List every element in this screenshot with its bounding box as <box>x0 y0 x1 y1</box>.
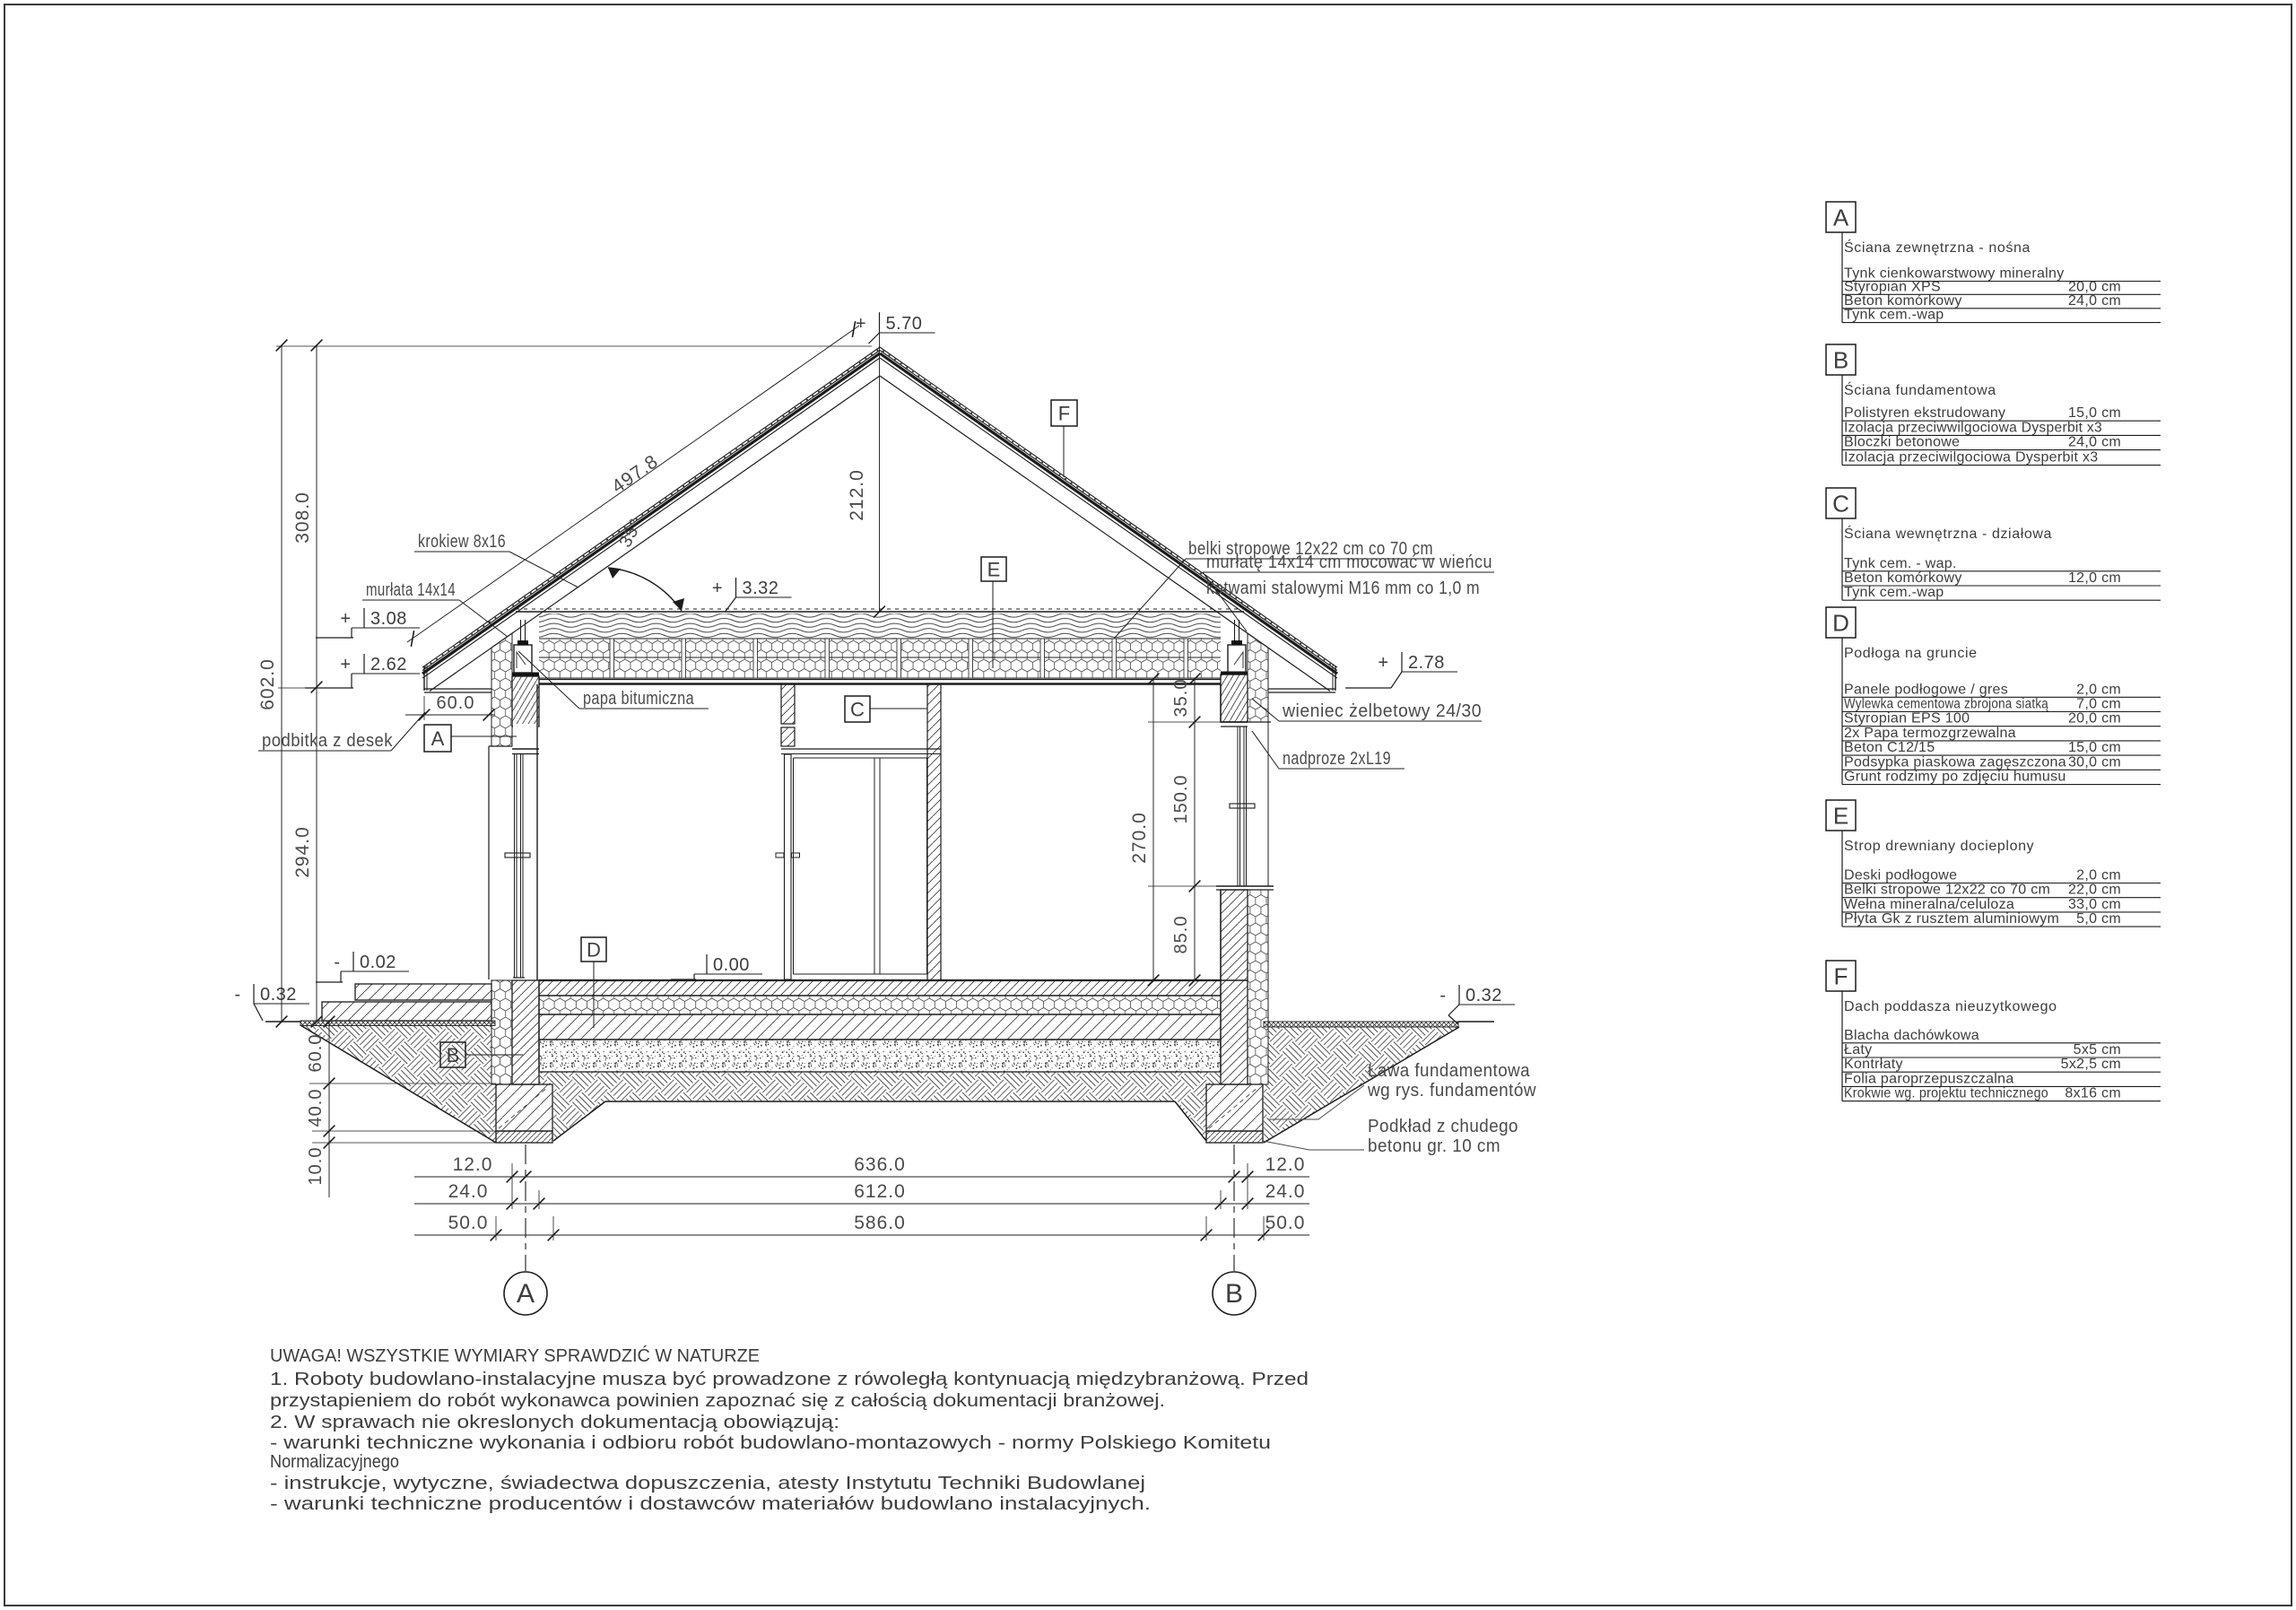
svg-text:30,0 cm: 30,0 cm <box>2068 754 2121 770</box>
svg-text:5.70: 5.70 <box>886 314 923 334</box>
svg-text:5x5 cm: 5x5 cm <box>2074 1042 2121 1057</box>
svg-text:22,0 cm: 22,0 cm <box>2068 883 2121 898</box>
svg-text:2. W sprawach nie okreslonych: 2. W sprawach nie okreslonych dokumentac… <box>270 1413 839 1432</box>
svg-text:Strop drewniany docieplony: Strop drewniany docieplony <box>1844 839 2034 854</box>
svg-text:- warunki techniczne wykonania: - warunki techniczne wykonania i odbioru… <box>270 1433 1271 1453</box>
svg-text:Beton C12/15: Beton C12/15 <box>1844 740 1935 755</box>
svg-text:Ława fundamentowa: Ława fundamentowa <box>1368 1061 1530 1081</box>
svg-text:612.0: 612.0 <box>854 1181 906 1202</box>
svg-text:+: + <box>340 655 351 674</box>
svg-text:B: B <box>1225 1279 1243 1309</box>
svg-text:Dach poddasza nieuzytkowego: Dach poddasza nieuzytkowego <box>1844 999 2057 1014</box>
svg-text:E: E <box>1833 802 1848 829</box>
svg-text:24.0: 24.0 <box>1265 1181 1306 1202</box>
svg-text:- warunki techniczne producent: - warunki techniczne producentów i dosta… <box>270 1494 1151 1514</box>
svg-text:1. Roboty budowlano-instalacyj: 1. Roboty budowlano-instalacyjne musza b… <box>270 1370 1309 1389</box>
svg-text:Tynk cem. - wap.: Tynk cem. - wap. <box>1844 556 1957 571</box>
svg-text:40.0: 40.0 <box>306 1089 326 1127</box>
svg-text:murłata 14x14: murłata 14x14 <box>366 580 456 600</box>
svg-text:Belki stropowe 12x22 co 70 cm: Belki stropowe 12x22 co 70 cm <box>1844 883 2050 898</box>
svg-text:20,0 cm: 20,0 cm <box>2068 279 2121 294</box>
svg-text:A: A <box>1833 204 1849 231</box>
svg-text:Deski podłogowe: Deski podłogowe <box>1844 868 1957 883</box>
svg-text:nadproze 2xL19: nadproze 2xL19 <box>1283 749 1391 769</box>
svg-text:3.08: 3.08 <box>370 609 407 629</box>
svg-text:12.0: 12.0 <box>453 1154 493 1175</box>
svg-text:5,0 cm: 5,0 cm <box>2076 911 2121 927</box>
svg-text:2.78: 2.78 <box>1408 653 1445 673</box>
svg-text:wieniec żelbetowy 24/30: wieniec żelbetowy 24/30 <box>1282 701 1482 721</box>
svg-text:przystapieniem do robót wykona: przystapieniem do robót wykonawca powini… <box>270 1391 1165 1411</box>
svg-text:murłatę 14x14 cm mocować w wie: murłatę 14x14 cm mocować w wieńcu <box>1206 553 1492 572</box>
svg-text:Styropian EPS 100: Styropian EPS 100 <box>1844 711 1970 727</box>
svg-text:C: C <box>850 698 865 720</box>
svg-text:Podłoga na gruncie: Podłoga na gruncie <box>1844 646 1978 661</box>
svg-text:50.0: 50.0 <box>448 1213 489 1233</box>
svg-text:Polistyren ekstrudowany: Polistyren ekstrudowany <box>1844 405 2005 421</box>
svg-text:+: + <box>856 314 866 334</box>
svg-text:Płyta Gk z rusztem aluminiowym: Płyta Gk z rusztem aluminiowym <box>1844 911 2059 927</box>
svg-text:krokiew 8x16: krokiew 8x16 <box>418 532 506 552</box>
svg-text:betonu gr. 10 cm: betonu gr. 10 cm <box>1368 1136 1500 1156</box>
svg-text:Grunt rodzimy po zdjęciu humus: Grunt rodzimy po zdjęciu humusu <box>1844 770 2066 785</box>
svg-text:Ściana zewnętrzna - nośna: Ściana zewnętrzna - nośna <box>1844 239 2031 256</box>
svg-text:podbitka z desek: podbitka z desek <box>262 731 393 751</box>
svg-text:294.0: 294.0 <box>292 826 313 878</box>
svg-text:D: D <box>1832 609 1849 636</box>
svg-text:586.0: 586.0 <box>854 1213 906 1233</box>
svg-text:Tynk cem.-wap: Tynk cem.-wap <box>1844 585 1944 600</box>
svg-text:7,0 cm: 7,0 cm <box>2076 697 2121 712</box>
svg-text:20,0 cm: 20,0 cm <box>2068 711 2121 727</box>
svg-text:F: F <box>1058 402 1070 424</box>
svg-text:Normalizacyjnego: Normalizacyjnego <box>270 1452 399 1472</box>
svg-text:Krokwie wg. projektu techniczn: Krokwie wg. projektu technicznego <box>1844 1086 2048 1101</box>
svg-text:5x2,5 cm: 5x2,5 cm <box>2061 1057 2121 1072</box>
svg-text:50.0: 50.0 <box>1265 1213 1306 1233</box>
svg-text:Podkład z chudego: Podkład z chudego <box>1368 1117 1518 1136</box>
svg-text:24,0 cm: 24,0 cm <box>2068 293 2121 309</box>
svg-text:2,0 cm: 2,0 cm <box>2076 682 2121 697</box>
svg-text:papa bitumiczna: papa bitumiczna <box>583 689 694 709</box>
svg-text:B: B <box>1833 346 1848 373</box>
svg-text:212.0: 212.0 <box>847 469 867 521</box>
svg-text:Blacha dachówkowa: Blacha dachówkowa <box>1844 1028 1979 1043</box>
svg-text:UWAGA! WSZYSTKIE WYMIARY SPRAW: UWAGA! WSZYSTKIE WYMIARY SPRAWDZIĆ W NAT… <box>270 1345 760 1366</box>
svg-text:+: + <box>712 579 723 598</box>
svg-text:-: - <box>234 985 240 1005</box>
svg-text:60.0: 60.0 <box>306 1034 326 1073</box>
svg-text:602.0: 602.0 <box>257 658 278 710</box>
svg-text:0.32: 0.32 <box>260 985 297 1005</box>
svg-text:D: D <box>587 938 601 961</box>
svg-text:308.0: 308.0 <box>292 492 313 544</box>
svg-text:Panele podłogowe / gres: Panele podłogowe / gres <box>1844 682 2008 697</box>
svg-text:2.62: 2.62 <box>370 655 407 674</box>
svg-text:kotwami stalowymi M16 mm co 1,: kotwami stalowymi M16 mm co 1,0 m <box>1206 579 1480 598</box>
svg-text:-: - <box>334 953 340 972</box>
svg-text:Folia paroprzepuszczalna: Folia paroprzepuszczalna <box>1844 1071 2014 1086</box>
svg-text:Beton komórkowy: Beton komórkowy <box>1844 570 1962 586</box>
svg-text:B: B <box>447 1044 460 1066</box>
svg-text:E: E <box>987 558 1001 580</box>
svg-text:2x Papa termozgrzewalna: 2x Papa termozgrzewalna <box>1844 726 2016 741</box>
svg-text:Ściana fundamentowa: Ściana fundamentowa <box>1844 381 1996 398</box>
svg-text:+: + <box>1378 653 1388 673</box>
svg-text:Styropian XPS: Styropian XPS <box>1844 279 1941 294</box>
svg-text:3.32: 3.32 <box>743 579 779 598</box>
svg-text:wg rys. fundamentów: wg rys. fundamentów <box>1367 1081 1536 1101</box>
svg-text:Bloczki betonowe: Bloczki betonowe <box>1844 435 1960 450</box>
svg-text:Łaty: Łaty <box>1844 1042 1872 1057</box>
svg-text:150.0: 150.0 <box>1171 774 1191 823</box>
svg-text:15,0 cm: 15,0 cm <box>2068 740 2121 755</box>
svg-text:-: - <box>1439 986 1446 1005</box>
svg-text:15,0 cm: 15,0 cm <box>2068 405 2121 421</box>
svg-text:0.02: 0.02 <box>360 953 396 972</box>
svg-text:Ściana wewnętrzna - działowa: Ściana wewnętrzna - działowa <box>1844 525 2052 542</box>
svg-text:C: C <box>1832 490 1849 517</box>
svg-text:24.0: 24.0 <box>448 1181 489 1202</box>
svg-text:Izolacja przeciwwilgociowa Dys: Izolacja przeciwwilgociowa Dysperbit x3 <box>1844 420 2102 435</box>
svg-text:Wełna mineralna/celuloza: Wełna mineralna/celuloza <box>1844 897 2014 912</box>
svg-text:12,0 cm: 12,0 cm <box>2068 570 2121 586</box>
svg-text:A: A <box>517 1279 535 1309</box>
svg-text:Kontrłaty: Kontrłaty <box>1844 1057 1903 1072</box>
svg-text:270.0: 270.0 <box>1129 812 1150 864</box>
svg-text:Tynk cem.-wap: Tynk cem.-wap <box>1844 308 1944 323</box>
svg-text:35.0: 35.0 <box>1171 679 1191 718</box>
svg-text:33,0 cm: 33,0 cm <box>2068 897 2121 912</box>
svg-text:10.0: 10.0 <box>306 1147 326 1186</box>
svg-text:24,0 cm: 24,0 cm <box>2068 435 2121 450</box>
svg-text:85.0: 85.0 <box>1171 916 1191 954</box>
svg-text:A: A <box>431 727 445 750</box>
svg-text:60.0: 60.0 <box>437 693 475 713</box>
svg-text:- instrukcje, wytyczne, świade: - instrukcje, wytyczne, świadectwa dopus… <box>270 1474 1145 1493</box>
svg-text:12.0: 12.0 <box>1265 1154 1306 1175</box>
svg-text:0.32: 0.32 <box>1465 986 1502 1005</box>
svg-text:Izolacja przeciwilgociowa Dysp: Izolacja przeciwilgociowa Dysperbit x3 <box>1844 450 2099 466</box>
svg-text:Wylewka cementowa zbrojona sia: Wylewka cementowa zbrojona siatką <box>1844 697 2048 712</box>
svg-text:636.0: 636.0 <box>854 1154 906 1175</box>
svg-text:F: F <box>1834 962 1848 989</box>
svg-text:2,0 cm: 2,0 cm <box>2076 868 2121 883</box>
svg-text:Podsypka piaskowa zagęszczona: Podsypka piaskowa zagęszczona <box>1844 754 2066 770</box>
svg-text:8x16 cm: 8x16 cm <box>2065 1086 2121 1101</box>
svg-text:+: + <box>340 609 351 629</box>
svg-text:0.00: 0.00 <box>713 955 750 975</box>
svg-text:Beton komórkowy: Beton komórkowy <box>1844 293 1962 309</box>
